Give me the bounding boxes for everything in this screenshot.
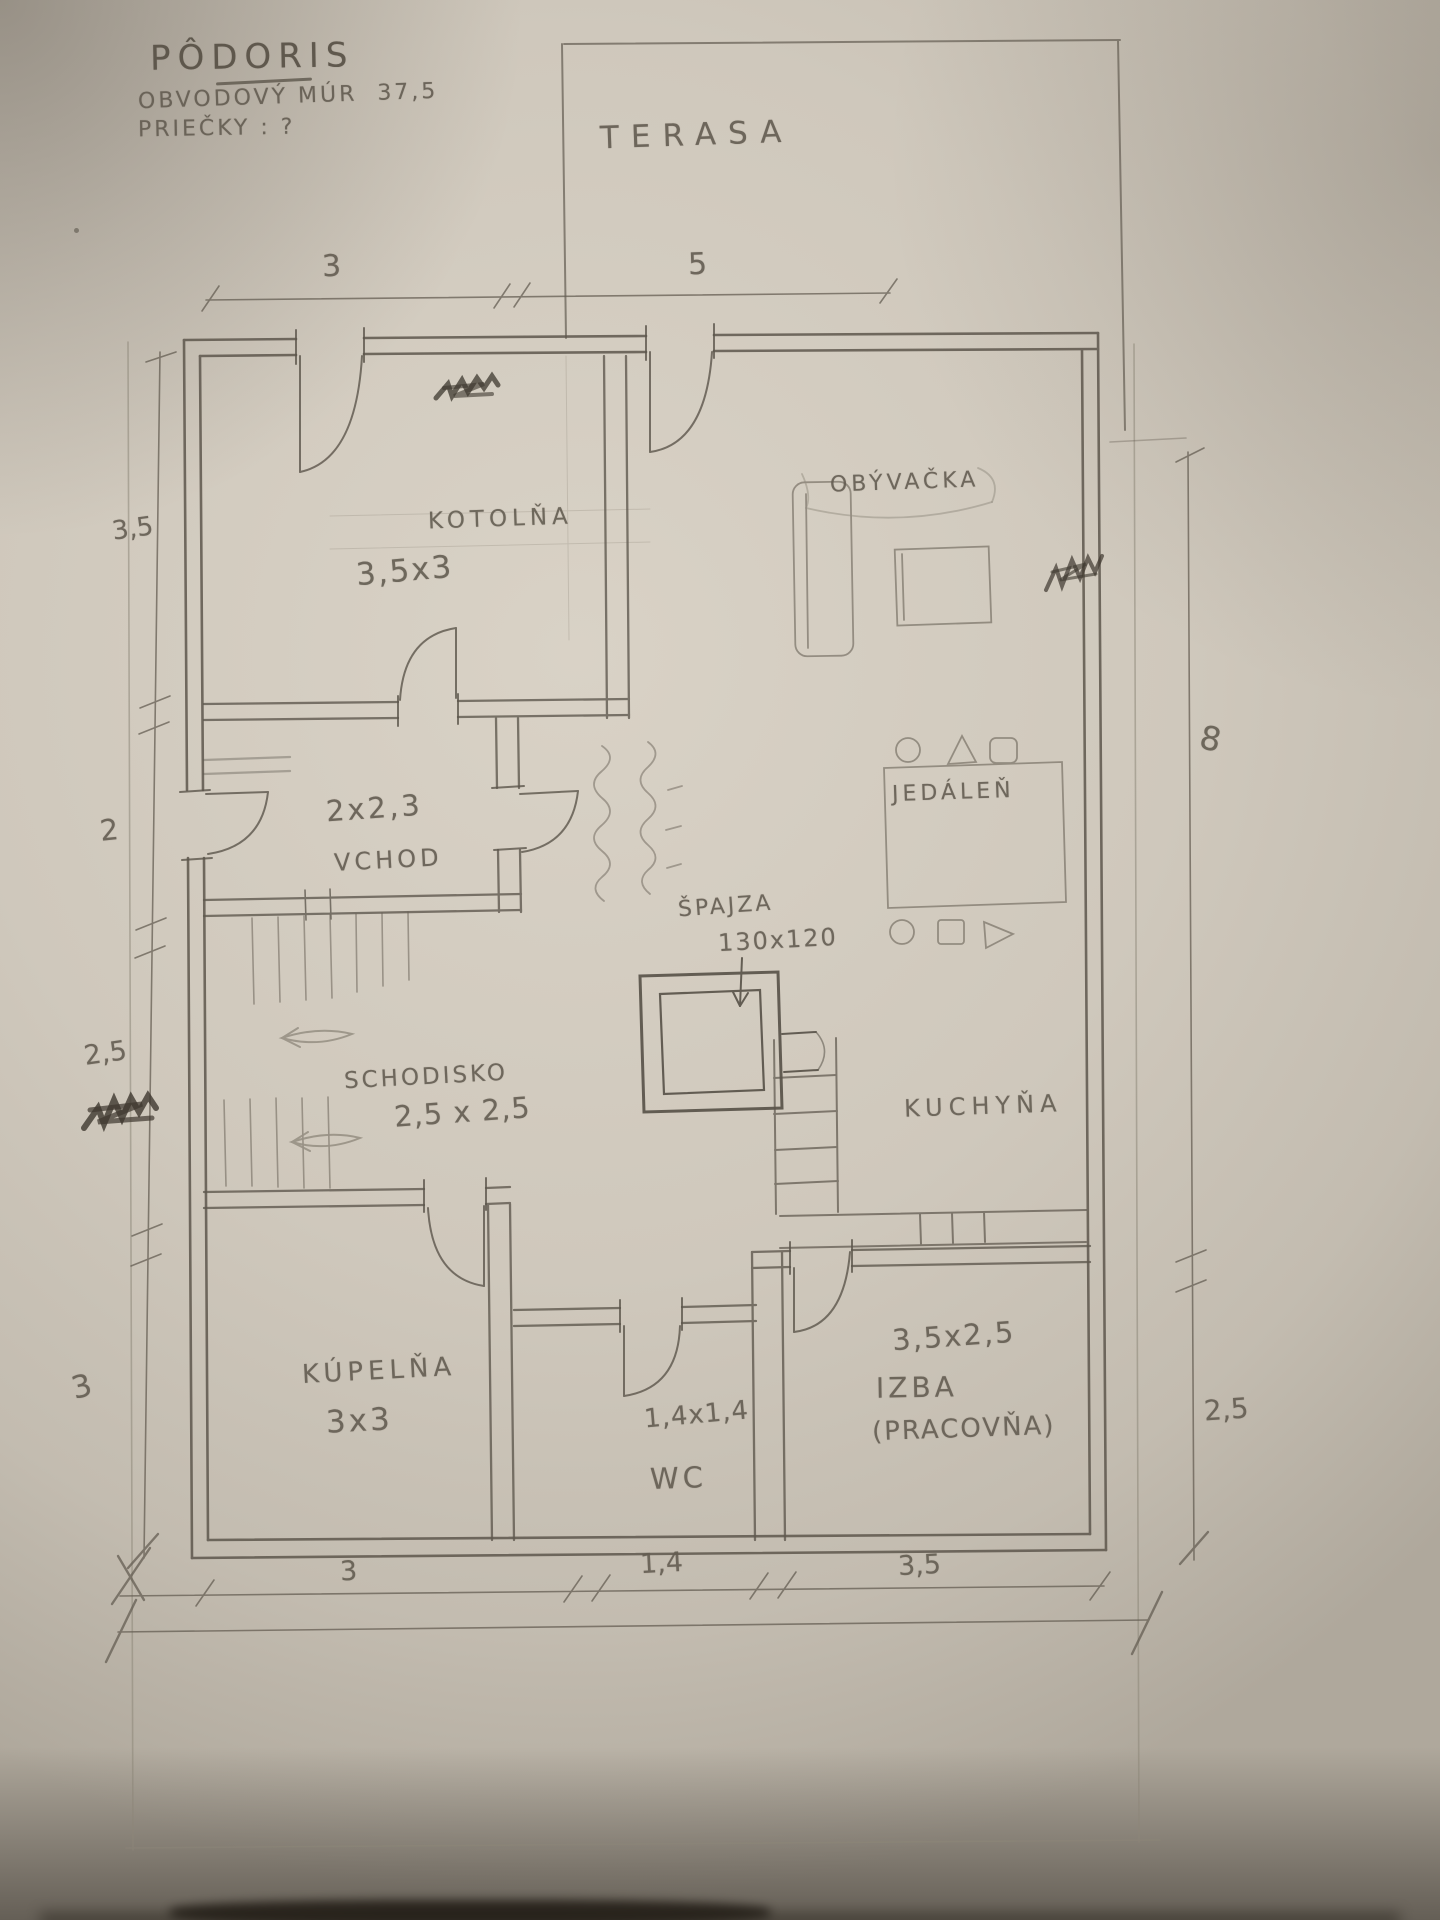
- dining-table: [884, 736, 1066, 948]
- room-label-izba-alt: (PRACOVŇA): [872, 1413, 1056, 1445]
- dim-bottom-2: 1,4: [639, 1549, 683, 1578]
- living-room-furniture: [792, 468, 994, 656]
- floorplan-drawing: [0, 0, 1440, 1920]
- dim-left-3: 2,5: [82, 1037, 128, 1070]
- terrace-outline: [562, 40, 1125, 430]
- dim-top-2: 5: [687, 250, 707, 281]
- room-label-kotolna: KOTOLŇA: [428, 505, 574, 533]
- chimney-squiggle: [594, 742, 682, 901]
- spajza-closet: [640, 958, 825, 1112]
- dim-left-1: 3,5: [110, 513, 155, 545]
- room-label-obyvacka: OBÝVAČKA: [830, 469, 980, 496]
- dim-left-2: 2: [99, 815, 120, 846]
- plan-title: PÔDORIS: [150, 38, 355, 76]
- room-size-kotolna: 3,5x3: [355, 552, 455, 591]
- kitchen-counter: [774, 1038, 1086, 1248]
- room-label-kuchyna: KUCHYŇA: [904, 1091, 1063, 1121]
- room-size-vchod: 2x2,3: [325, 791, 424, 827]
- pencil-speck: [74, 228, 79, 233]
- room-size-kupelna: 3x3: [325, 1404, 393, 1438]
- dim-bottom-3: 3,5: [897, 1551, 941, 1580]
- table-edge-shadow: [170, 1900, 770, 1920]
- room-label-vchod: VCHOD: [333, 845, 443, 875]
- room-label-kupelna: KÚPELŇA: [301, 1354, 456, 1388]
- dimension-lines: [106, 279, 1208, 1662]
- room-size-spajza: 130x120: [717, 925, 838, 955]
- room-size-izba: 3,5x2,5: [891, 1318, 1016, 1356]
- plan-subtitle-partitions: PRIEČKY : ?: [138, 117, 296, 142]
- floor-plan-photo: PÔDORIS OBVODOVÝ MÚR 37,5 PRIEČKY : ? TE…: [0, 0, 1440, 1920]
- room-label-izba: IZBA: [876, 1373, 958, 1402]
- room-label-jedalen: JEDÁLEŇ: [892, 780, 1015, 806]
- room-label-wc: WC: [650, 1463, 708, 1494]
- dim-right-2: 2,5: [1203, 1394, 1249, 1425]
- guide-lines: [330, 356, 650, 640]
- doors: [180, 324, 852, 1396]
- dim-bottom-1: 3: [339, 1558, 358, 1586]
- terrace-label: TERASA: [600, 117, 794, 155]
- dim-top-1: 3: [321, 252, 342, 283]
- stairs: [224, 912, 409, 1188]
